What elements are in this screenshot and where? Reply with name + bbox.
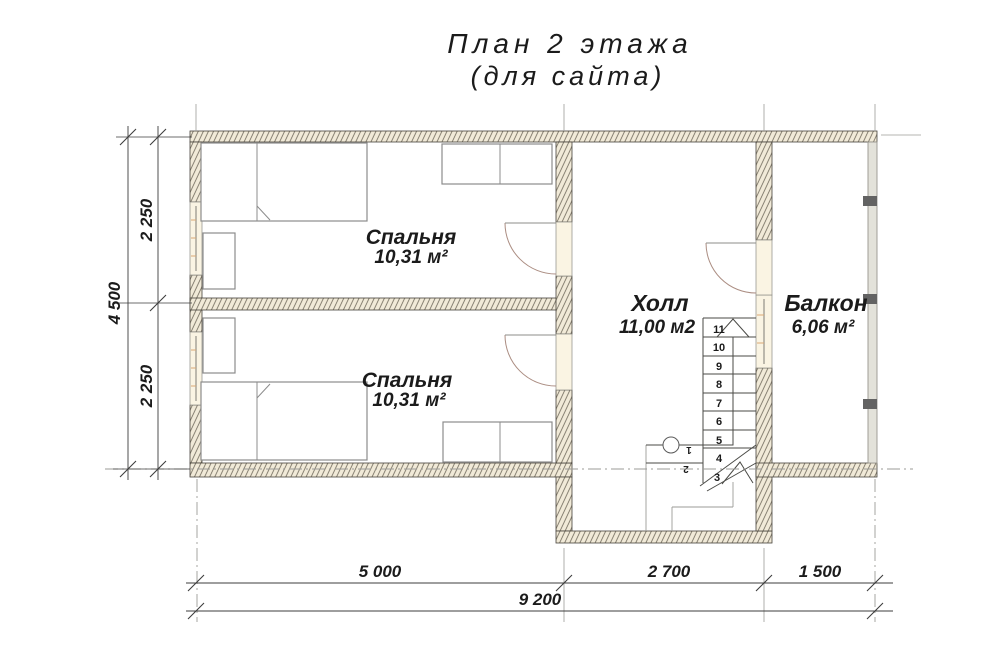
dresser-outline (442, 144, 552, 184)
bed-outline (201, 382, 367, 460)
bed-bedroom1 (201, 143, 367, 221)
stair-step-label: 10 (713, 342, 725, 354)
dimension-label-vertical-total: 4 500 (105, 281, 124, 325)
stair-step-label: 1 (686, 444, 692, 455)
door-arc-balcony (706, 243, 756, 293)
dimension-left (113, 126, 192, 480)
stair-step-label: 6 (716, 416, 722, 428)
door-opening-bedroom2 (556, 334, 572, 390)
bed-outline (201, 143, 367, 221)
wall-left-lower (190, 405, 202, 463)
stair-treads (646, 318, 756, 491)
wall-hall-left-2 (556, 276, 572, 334)
dimension-label-vertical-upper: 2 250 (137, 198, 156, 242)
stair-step-numbers: 1 2 3 4 5 6 7 8 9 10 11 (683, 324, 725, 484)
dresser-bedroom2 (443, 422, 552, 462)
wall-hall-left-1 (556, 142, 572, 222)
stair-step-label: 3 (714, 472, 720, 484)
stair-winder-line (700, 445, 756, 486)
room-area-balcony: 6,06 м² (792, 317, 855, 338)
wall-between-bedrooms (190, 298, 572, 310)
room-area-bedroom2: 10,31 м² (372, 390, 446, 411)
door-arc-bedroom1 (505, 223, 556, 274)
stair-step-label: 8 (716, 379, 722, 391)
wall-hall-bottom (556, 531, 772, 543)
bed-bedroom2 (201, 382, 367, 460)
wall-bedrooms-bottom (190, 463, 572, 477)
room-area-bedroom1: 10,31 м² (374, 247, 448, 268)
wall-hall-balcony-lower (756, 368, 772, 531)
room-area-hall: 11,00 м2 (619, 317, 695, 338)
window-hall-balcony (756, 295, 772, 368)
page-subtitle: (для сайта) (471, 61, 666, 91)
wall-balcony-bottom (756, 463, 877, 477)
page-title: План 2 этажа (447, 28, 692, 59)
railing-post (863, 196, 877, 206)
wall-hall-left-lower (556, 477, 572, 531)
railing-post (863, 399, 877, 409)
stair-step-label: 5 (716, 435, 722, 447)
dimension-label-seg2: 2 700 (647, 562, 691, 581)
dimension-label-vertical-lower: 2 250 (137, 364, 156, 408)
stair-step-label: 4 (716, 453, 723, 465)
wall-left-upper (190, 142, 202, 202)
room-label-bedroom2: Спальня (362, 369, 453, 392)
nightstand-bedroom2 (203, 318, 235, 373)
door-arc-bedroom2 (505, 335, 556, 386)
wall-top (190, 131, 877, 142)
dimension-label-seg1: 5 000 (359, 562, 402, 581)
stair-step-label: 11 (713, 324, 725, 336)
wall-hall-left-3 (556, 390, 572, 463)
dimension-label-total: 9 200 (519, 590, 562, 609)
staircase: 1 2 3 4 5 6 7 8 9 10 11 (646, 318, 756, 531)
stair-step-label: 9 (716, 361, 722, 373)
dresser-outline (443, 422, 552, 462)
window-bedroom1 (190, 202, 202, 275)
window-bedroom2 (190, 332, 202, 405)
floor-plan-page: План 2 этажа (для сайта) (0, 0, 1000, 661)
door-opening-balcony (756, 240, 772, 295)
door-opening-bedroom1 (556, 222, 572, 276)
nightstand-bedroom1 (203, 233, 235, 289)
stair-step-label: 7 (716, 398, 722, 410)
dimension-label-seg3: 1 500 (799, 562, 842, 581)
floor-plan-drawing: План 2 этажа (для сайта) (0, 0, 1000, 661)
wall-hall-balcony-upper (756, 142, 772, 240)
dresser-bedroom1 (442, 144, 552, 184)
room-label-bedroom1: Спальня (366, 226, 457, 249)
stair-start-circle (663, 437, 679, 453)
room-label-balcony: Балкон (784, 290, 867, 316)
room-label-hall: Холл (629, 290, 688, 316)
